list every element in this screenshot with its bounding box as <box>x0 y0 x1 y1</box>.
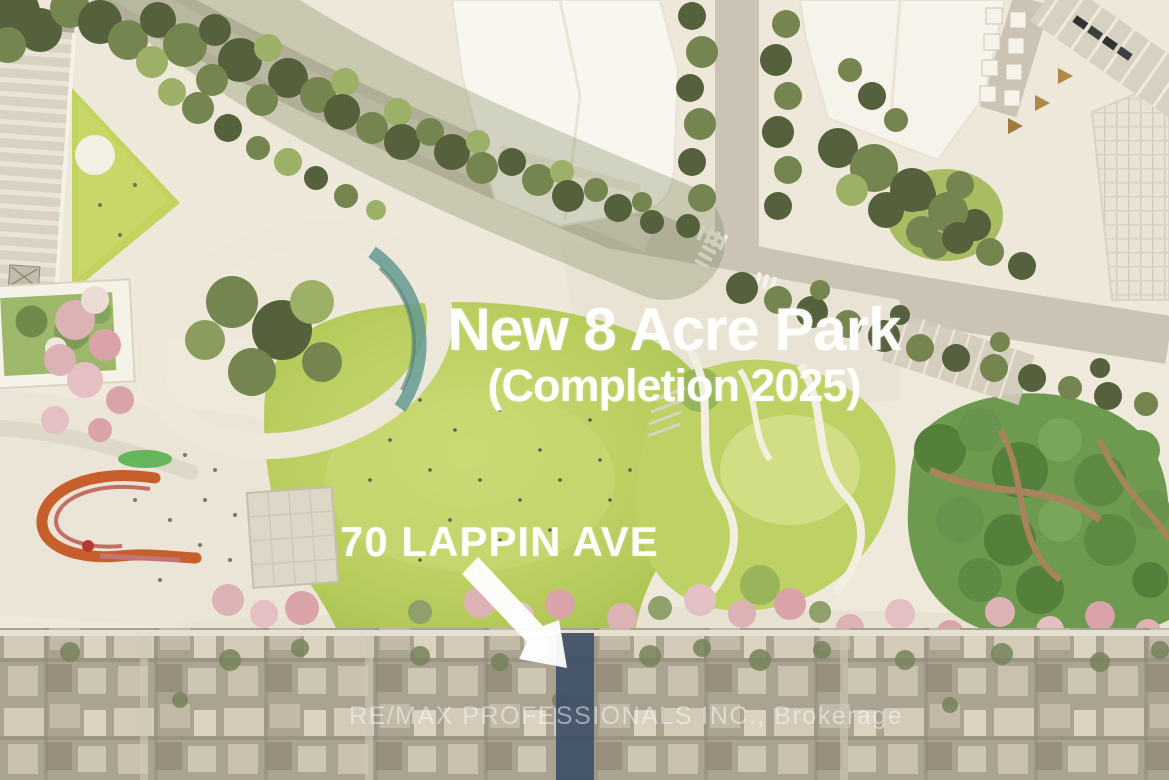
park-subtitle: (Completion 2025) <box>428 362 920 409</box>
highlighted-lot-70-lappin <box>556 633 594 780</box>
site-plan-rendering: New 8 Acre Park (Completion 2025) 70 LAP… <box>0 0 1169 780</box>
park-title-block: New 8 Acre Park (Completion 2025) <box>428 300 920 409</box>
wetland-patch <box>118 450 172 468</box>
sports-court <box>247 487 338 588</box>
east-grove <box>908 393 1169 641</box>
park-title: New 8 Acre Park <box>428 300 920 360</box>
neighbourhood-strip <box>0 628 1169 780</box>
